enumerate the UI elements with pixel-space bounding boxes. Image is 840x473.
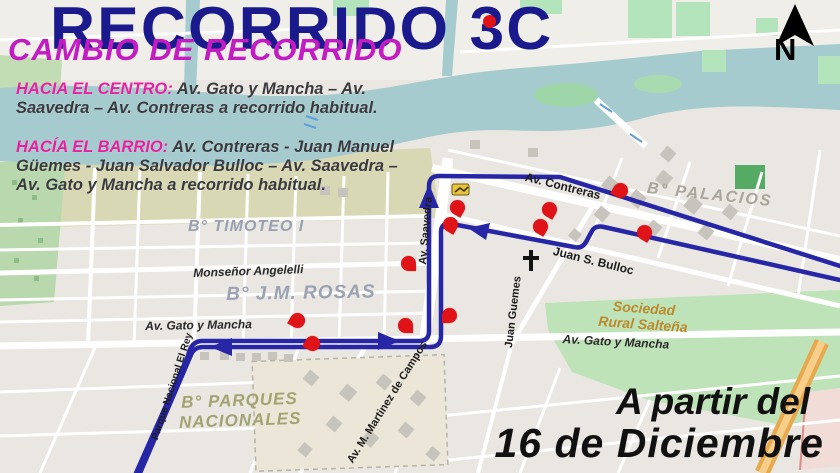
excavator-icon [452, 184, 469, 195]
stop-marker-icon [398, 318, 413, 333]
north-compass: N [762, 2, 828, 68]
effective-date-line1: A partir del [495, 383, 825, 422]
route-description-barrio: HACÍA EL BARRIO: Av. Contreras - Juan Ma… [16, 138, 424, 195]
river-island [534, 83, 598, 107]
centro-label: HACIA EL CENTRO: [16, 80, 173, 98]
brand-dot [483, 15, 496, 28]
route-change-poster: RECORRIDO 3C CAMBIO DE RECORRIDO HACIA E… [0, 0, 840, 473]
stop-marker-icon [442, 308, 457, 323]
route-description-centro: HACIA EL CENTRO: Av. Gato y Mancha – Av.… [16, 80, 424, 118]
poster-subtitle: CAMBIO DE RECORRIDO [8, 32, 402, 68]
stop-marker-icon [401, 256, 416, 271]
barrio-label: HACÍA EL BARRIO: [16, 138, 168, 156]
effective-date: A partir del 16 de Diciembre [495, 383, 825, 465]
parques-block [252, 355, 448, 472]
north-letter: N [774, 32, 796, 68]
effective-date-line2: 16 de Diciembre [495, 422, 825, 465]
